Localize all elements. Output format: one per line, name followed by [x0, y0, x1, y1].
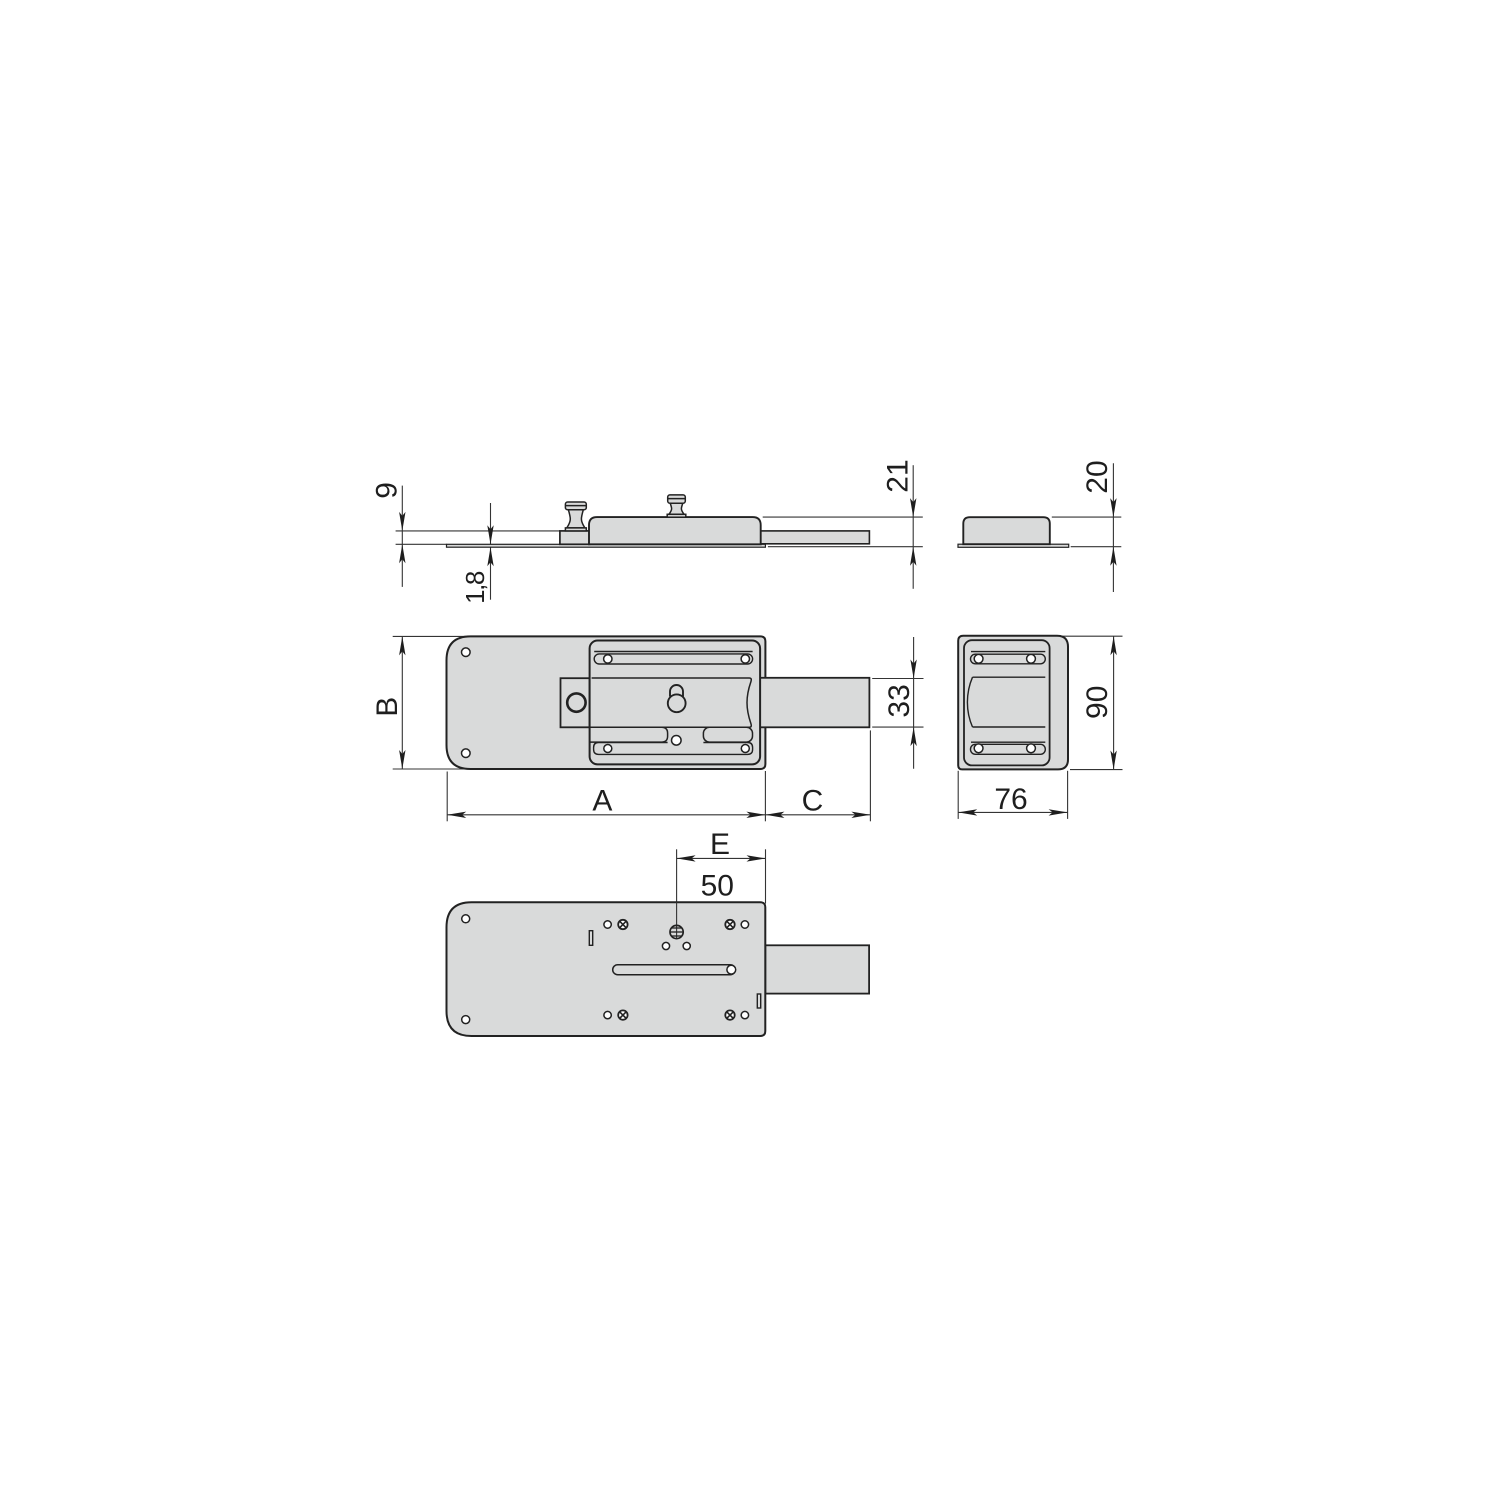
svg-text:9: 9 — [371, 482, 404, 499]
svg-text:21: 21 — [881, 459, 914, 492]
svg-text:90: 90 — [1081, 686, 1114, 719]
svg-text:1,8: 1,8 — [460, 571, 490, 604]
svg-text:E: E — [710, 828, 730, 861]
svg-text:B: B — [371, 697, 404, 717]
svg-text:33: 33 — [883, 684, 916, 717]
svg-text:A: A — [592, 785, 612, 818]
svg-text:50: 50 — [701, 869, 734, 902]
svg-text:76: 76 — [994, 783, 1027, 816]
svg-text:C: C — [802, 785, 824, 818]
svg-text:20: 20 — [1081, 460, 1114, 493]
